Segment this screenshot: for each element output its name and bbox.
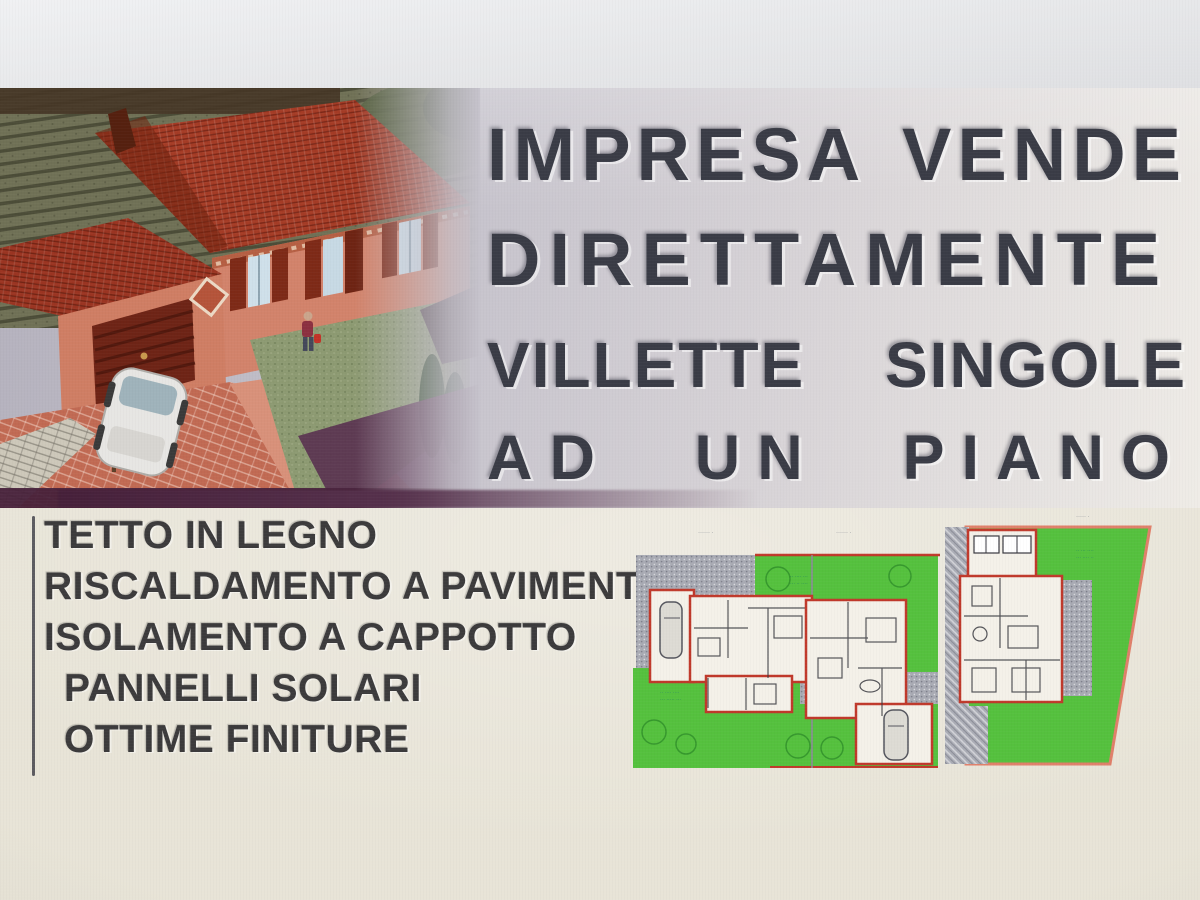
feature-list: TETTO IN LEGNO RISCALDAMENTO A PAVIMENTO… <box>44 510 670 765</box>
lot-label: ····· · <box>1076 514 1090 520</box>
headline-word: VILLETTE <box>487 333 805 397</box>
headline-word: AD <box>487 427 612 490</box>
plan-annotation: ··· ····· ··· <box>660 697 681 703</box>
ad-lower-section: TETTO IN LEGNO RISCALDAMENTO A PAVIMENTO… <box>0 508 1200 900</box>
plan-annotation: ·· ···· ··· <box>790 574 808 580</box>
feature-item: RISCALDAMENTO A PAVIMENTO <box>44 561 670 612</box>
headline-word: UN <box>695 427 820 490</box>
headline-line-2: DIRETTAMENTE <box>487 223 1187 297</box>
lot-label: ······ · <box>698 530 714 536</box>
monitor-photo: IMPRESA VENDE DIRETTAMENTE VILLETTE SING… <box>0 0 1200 900</box>
garage-door-handle <box>141 353 148 360</box>
banner-bottom-shadow <box>58 490 758 508</box>
left-lot-plan: ······ · ······ · ·· ···· ···· ··· ·····… <box>633 530 940 768</box>
ad-banner: IMPRESA VENDE DIRETTAMENTE VILLETTE SING… <box>0 88 1200 508</box>
headline-word: DIRETTAMENTE <box>487 223 1169 297</box>
left-rule <box>32 516 35 776</box>
screen-blank-top <box>0 0 1200 88</box>
headline-line-3: VILLETTE SINGOLE <box>487 333 1187 397</box>
house-render-image <box>0 88 480 508</box>
site-plan-image: ······ · ······ · ·· ···· ···· ··· ·····… <box>628 508 1165 771</box>
headline-line-1: IMPRESA VENDE <box>487 118 1187 192</box>
plan-annotation: ··· ·· ···· <box>790 581 808 587</box>
feature-item: TETTO IN LEGNO <box>44 510 670 561</box>
headline-block: IMPRESA VENDE DIRETTAMENTE VILLETTE SING… <box>487 104 1187 490</box>
feature-item: PANNELLI SOLARI <box>44 663 670 714</box>
plan-annotation: ··· ···· ·· <box>1076 555 1094 561</box>
lot-label: ······ · <box>836 530 852 536</box>
headline-word: IMPRESA <box>487 118 866 192</box>
right-lot-plan: ····· · ·· ··· ···· ··· ···· ·· <box>945 514 1150 764</box>
plan-annotation: ·· ··· ···· <box>1076 548 1094 554</box>
plan-annotation: ·· ···· ···· <box>660 690 680 696</box>
feature-item: ISOLAMENTO A CAPPOTTO <box>44 612 670 663</box>
headline-word: SINGOLE <box>885 333 1187 397</box>
headline-word: PIANO <box>902 427 1187 490</box>
headline-line-4: AD UN PIANO <box>487 427 1187 490</box>
headline-word: VENDE <box>902 118 1187 192</box>
feature-item: OTTIME FINITURE <box>44 714 670 765</box>
